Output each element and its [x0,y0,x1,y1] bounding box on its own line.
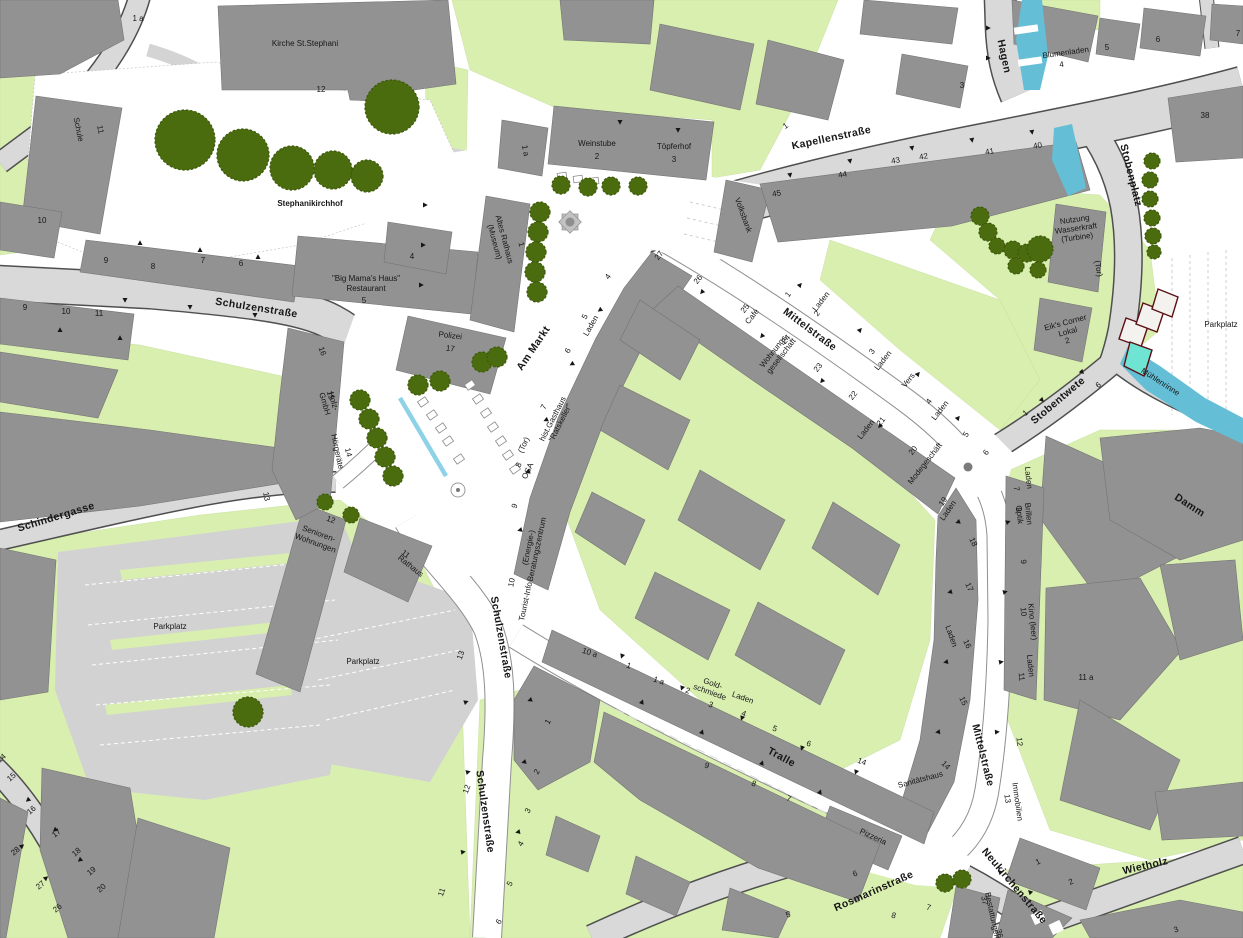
toepferhof-label: Töpferhof [657,142,692,151]
tree-icon [971,207,989,225]
house-number: 13 [1002,794,1012,805]
house-number: 5 [362,296,367,305]
tree-icon [1030,262,1046,278]
kirche-st-stephani-label: Kirche St.Stephani [272,39,338,48]
stephanikirchhof-label: Stephanikirchhof [277,199,343,208]
house-number: 10 [62,307,71,316]
tree-icon [528,222,548,242]
tree-icon [527,282,547,302]
junction-bollard-icon [964,463,973,472]
house-number: 6 [239,259,244,268]
tree-icon [936,874,954,892]
weinstube-label: Weinstube [578,139,616,148]
tree-icon [1027,236,1053,262]
tree-icon [602,177,620,195]
fountain-icon [451,483,465,497]
tree-icon [552,176,570,194]
tree-icon [317,494,333,510]
tree-icon [359,409,379,429]
tree-icon [989,238,1005,254]
tree-icon [155,110,215,170]
house-number: 9 [23,303,28,312]
house-number: 11 [1017,672,1027,682]
tree-icon [430,371,450,391]
house-number: 12 [1015,737,1025,747]
house-number: 3 [960,81,965,90]
tree-icon [367,428,387,448]
tree-icon [487,347,507,367]
house-number: 6 [1156,35,1161,44]
tree-icon [579,178,597,196]
tree-icon [350,390,370,410]
tree-icon [629,177,647,195]
tree-icon [1145,228,1161,244]
brillen-optik-label: BrillenOptik [1014,502,1034,526]
parkplatz-west-label: Parkplatz [153,622,186,631]
town-plan-map: 1 a12111098769101154171231 a161514131211… [0,0,1243,938]
tree-icon [375,447,395,467]
house-number: 10 [38,216,47,225]
house-number: 8 [151,262,156,271]
tree-icon [383,466,403,486]
parkplatz-mitte-label: Parkplatz [346,657,379,666]
tree-icon [1144,210,1160,226]
house-number: 2 [595,152,600,161]
house-number: 9 [104,256,109,265]
tree-icon [365,80,419,134]
monument-icon [559,211,582,234]
house-number: 5 [1105,43,1110,52]
tree-icon [1144,153,1160,169]
tree-icon [217,129,269,181]
house-number: 7 [201,256,206,265]
house-number: 3 [672,155,677,164]
tree-icon [1142,172,1158,188]
house-number: 7 [1236,29,1241,38]
tree-icon [314,151,352,189]
tree-icon [233,697,263,727]
house-number: 17 [445,344,455,354]
parkplatz-ost-label: Parkplatz [1204,320,1237,329]
house-number: 38 [1201,111,1210,120]
tree-icon [1008,258,1024,274]
house-number: 12 [317,85,326,94]
tree-icon [953,870,971,888]
house-number: 4 [410,252,415,261]
tree-icon [408,375,428,395]
tree-icon [526,242,546,262]
house-number: 11 a [1079,673,1095,682]
tree-icon [1147,245,1161,259]
tree-icon [343,507,359,523]
house-number: 11 [95,309,104,318]
tree-icon [270,146,314,190]
tree-icon [530,202,550,222]
tree-icon [351,160,383,192]
house-number: 1 a [132,14,144,23]
tree-icon [525,262,545,282]
